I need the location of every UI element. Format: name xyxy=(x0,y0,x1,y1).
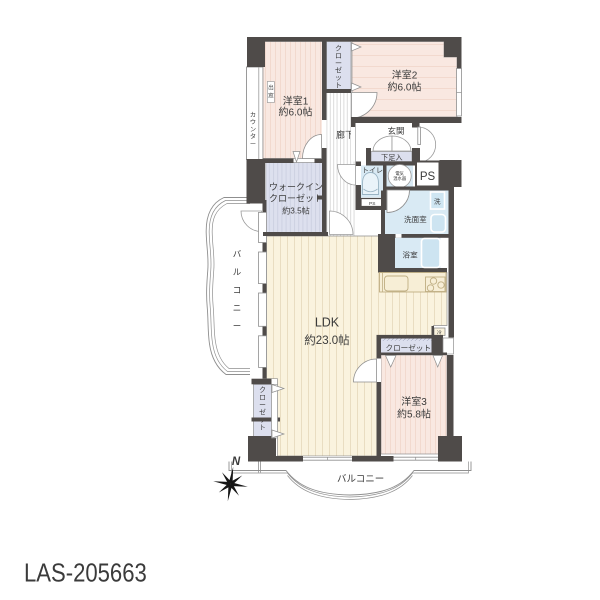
svg-text:浴室: 浴室 xyxy=(403,250,419,260)
svg-text:約6.0帖: 約6.0帖 xyxy=(388,81,422,94)
svg-text:下足入: 下足入 xyxy=(381,153,403,162)
svg-text:N: N xyxy=(232,456,241,468)
svg-text:ゼ: ゼ xyxy=(259,408,266,417)
svg-text:約5.8帖: 約5.8帖 xyxy=(397,408,431,421)
svg-text:ロ: ロ xyxy=(335,53,342,60)
svg-text:洋室1: 洋室1 xyxy=(283,95,309,108)
svg-text:洋室2: 洋室2 xyxy=(392,69,418,82)
svg-text:クローゼット: クローゼット xyxy=(269,193,323,204)
svg-text:洗: 洗 xyxy=(434,197,441,206)
svg-text:ロ: ロ xyxy=(259,395,266,402)
svg-text:ク: ク xyxy=(259,386,266,394)
svg-text:約23.0帖: 約23.0帖 xyxy=(304,333,349,347)
svg-text:PS: PS xyxy=(420,171,436,183)
svg-text:窓: 窓 xyxy=(268,92,274,100)
svg-text:ー: ー xyxy=(335,60,342,67)
svg-text:ゼ: ゼ xyxy=(335,66,342,75)
svg-text:ッ: ッ xyxy=(335,75,342,82)
svg-text:ト: ト xyxy=(259,425,266,432)
svg-text:コ: コ xyxy=(233,285,242,295)
svg-text:約6.0帖: 約6.0帖 xyxy=(279,106,313,119)
svg-text:洗面室: 洗面室 xyxy=(404,214,427,224)
svg-text:ル: ル xyxy=(233,267,242,277)
svg-text:タ: タ xyxy=(250,133,256,141)
svg-text:洋室3: 洋室3 xyxy=(401,395,427,408)
svg-text:温水器: 温水器 xyxy=(393,175,407,182)
svg-text:玄関: 玄関 xyxy=(388,126,405,136)
svg-text:ニ: ニ xyxy=(233,303,242,313)
svg-text:出: 出 xyxy=(268,84,274,92)
svg-text:ー: ー xyxy=(259,402,266,409)
svg-text:ー: ー xyxy=(233,321,242,331)
svg-text:LAS-205663: LAS-205663 xyxy=(24,559,147,588)
svg-text:ク: ク xyxy=(335,45,342,53)
svg-text:バルコニー: バルコニー xyxy=(337,474,384,485)
svg-text:ウォークイン: ウォークイン xyxy=(269,182,323,192)
svg-text:約3.5帖: 約3.5帖 xyxy=(282,206,310,216)
svg-text:バ: バ xyxy=(233,249,242,259)
svg-text:ー: ー xyxy=(250,141,256,148)
svg-text:PS: PS xyxy=(369,201,375,207)
svg-text:カ: カ xyxy=(250,112,256,119)
svg-text:ト: ト xyxy=(335,83,342,90)
svg-text:ン: ン xyxy=(250,126,256,133)
svg-text:LDK: LDK xyxy=(315,316,340,330)
svg-text:クローゼット: クローゼット xyxy=(386,343,432,353)
svg-text:ウ: ウ xyxy=(250,118,256,126)
